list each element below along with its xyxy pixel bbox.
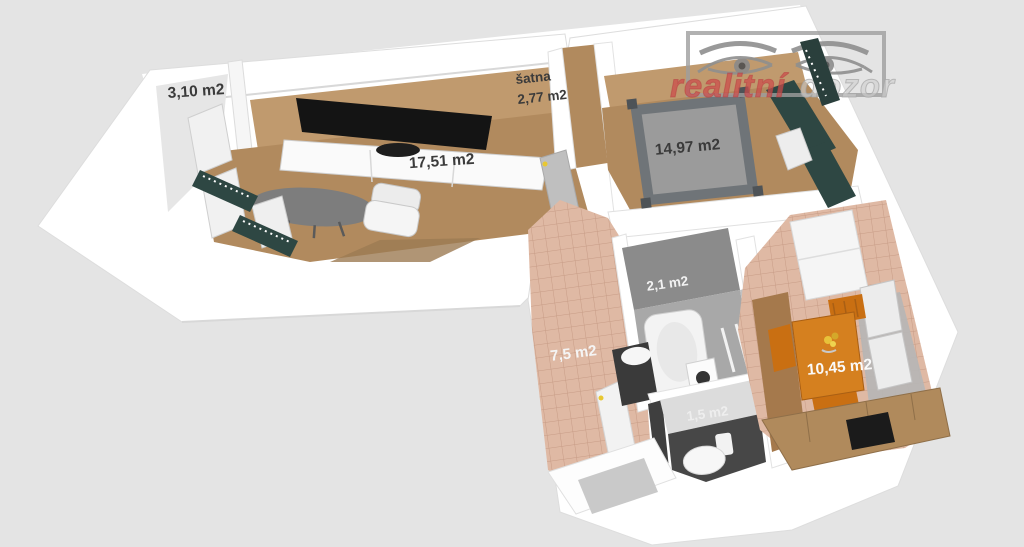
floorplan-image: 3,10 m2	[0, 0, 1024, 547]
kitchen-table	[792, 312, 864, 400]
watermark-word-red: realitní	[670, 67, 789, 104]
floorplan-scene: 3,10 m2	[0, 0, 1024, 547]
door-handle	[599, 396, 604, 401]
door-handle	[543, 162, 548, 167]
